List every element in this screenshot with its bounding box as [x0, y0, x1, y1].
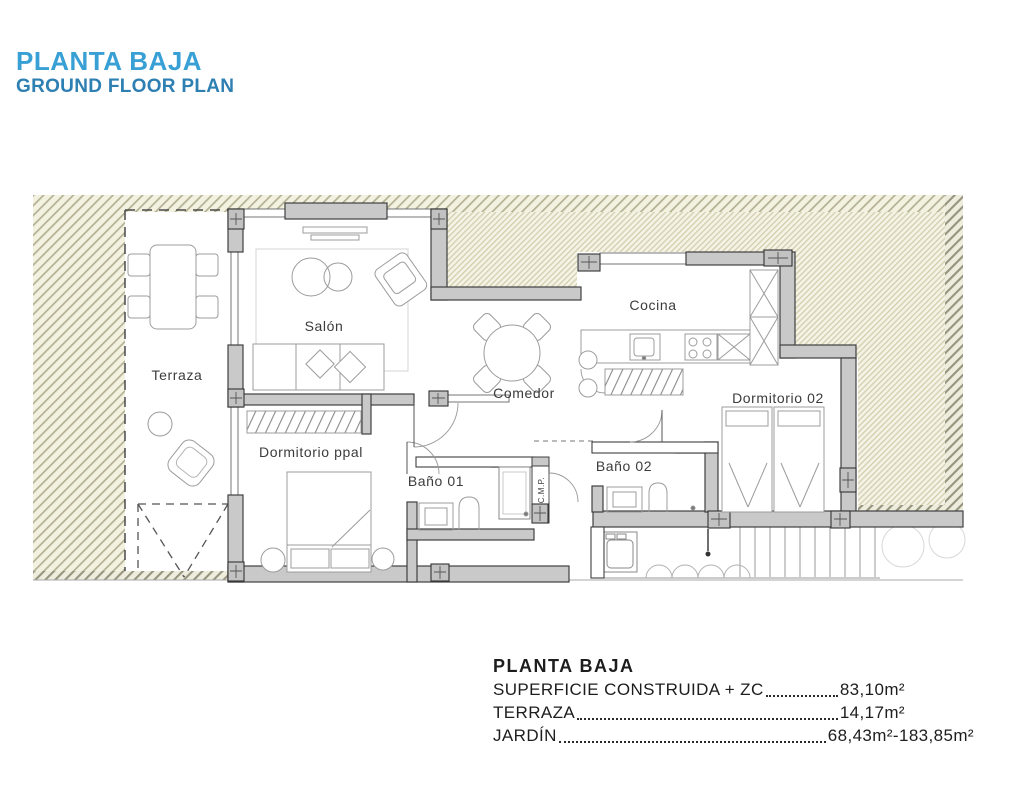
dormitorio-02-furniture: [722, 407, 824, 512]
cocina-furniture: [579, 270, 778, 397]
terrace-awning-dashed: [138, 504, 228, 577]
dot-leader: [559, 741, 826, 743]
shower-pole: [706, 529, 711, 557]
comedor-furniture: [471, 311, 552, 394]
room-label-dormitorio-ppal: Dormitorio ppal: [259, 444, 363, 460]
bano-02-fixtures: [607, 483, 695, 512]
summary-row: JARDÍN 68,43m²-183,85m²: [493, 727, 974, 746]
summary-label: JARDÍN: [493, 726, 557, 746]
summary-label: SUPERFICIE CONSTRUIDA + ZC: [493, 680, 764, 700]
dormitorio-ppal-furniture: [247, 411, 394, 572]
room-label-bano-01: Baño 01: [408, 473, 464, 489]
summary-row: TERRAZA 14,17m²: [493, 704, 905, 723]
room-label-comedor: Comedor: [493, 385, 555, 401]
summary-heading: PLANTA BAJA: [493, 656, 974, 677]
summary-row: SUPERFICIE CONSTRUIDA + ZC 83,10m²: [493, 681, 905, 700]
garden-bushes: [882, 522, 965, 567]
summary-value: 14,17m²: [840, 703, 905, 723]
room-label-dormitorio-02: Dormitorio 02: [732, 390, 824, 406]
porch-deck: [740, 527, 875, 577]
room-label-salon: Salón: [305, 318, 344, 334]
dot-leader: [766, 695, 838, 697]
room-label-terraza: Terraza: [152, 367, 203, 383]
room-label-cmp: C.M.P.: [537, 477, 546, 503]
washing-machine: [603, 532, 637, 572]
area-summary: PLANTA BAJA SUPERFICIE CONSTRUIDA + ZC 8…: [493, 656, 974, 746]
room-label-bano-02: Baño 02: [596, 458, 652, 474]
summary-value: 68,43m²-183,85m²: [828, 726, 974, 746]
porch-curtain-scallops: [646, 565, 750, 578]
salon-furniture: [253, 227, 429, 390]
floor-plan-page: { "header": { "title": "PLANTA BAJA", "s…: [0, 0, 1024, 800]
walls-white: [416, 442, 718, 578]
room-label-cocina: Cocina: [629, 297, 676, 313]
dot-leader: [577, 718, 838, 720]
summary-value: 83,10m²: [840, 680, 905, 700]
summary-label: TERRAZA: [493, 703, 575, 723]
